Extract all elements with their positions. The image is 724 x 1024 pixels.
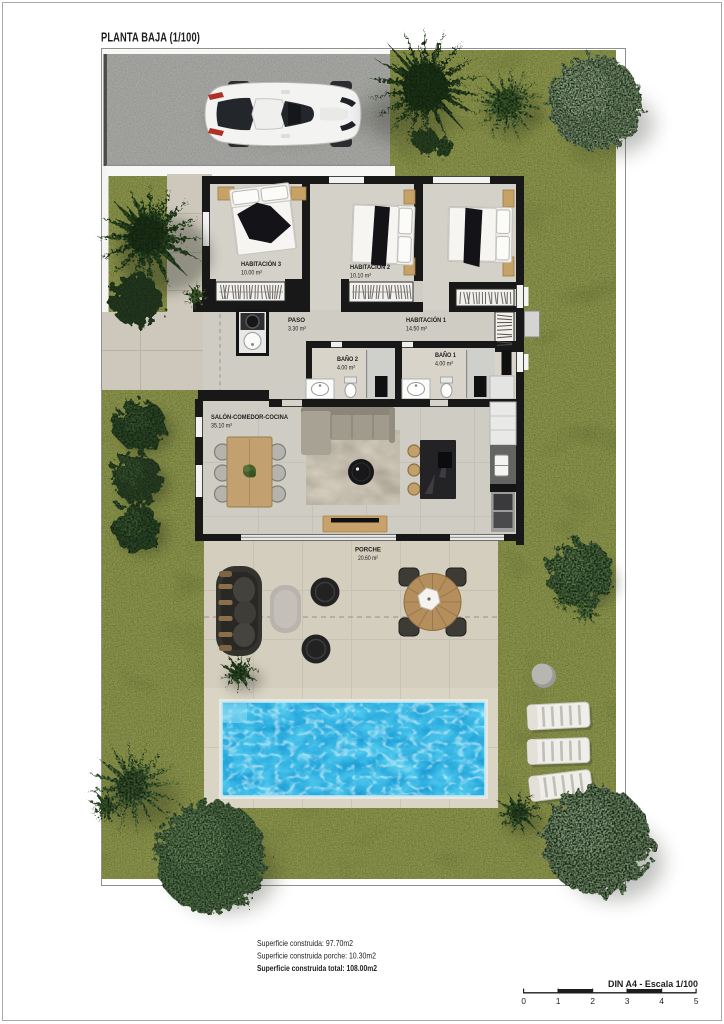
svg-text:4.00 m²: 4.00 m² (337, 366, 355, 372)
svg-text:4.00 m²: 4.00 m² (435, 362, 453, 368)
svg-text:BAÑO 2: BAÑO 2 (337, 354, 358, 363)
svg-text:1: 1 (556, 997, 561, 1006)
svg-text:SALÓN-COMEDOR-COCINA: SALÓN-COMEDOR-COCINA (211, 412, 288, 421)
svg-text:5: 5 (694, 997, 699, 1006)
svg-text:0: 0 (521, 997, 526, 1006)
svg-text:2: 2 (590, 997, 595, 1006)
svg-text:10.00 m²: 10.00 m² (241, 271, 262, 277)
svg-text:HABITACIÓN 3: HABITACIÓN 3 (241, 259, 281, 268)
svg-text:PASO: PASO (288, 317, 305, 324)
svg-text:HABITACIÓN 1: HABITACIÓN 1 (406, 315, 446, 324)
svg-text:10.10 m²: 10.10 m² (350, 274, 371, 280)
svg-text:PLANTA BAJA (1/100): PLANTA BAJA (1/100) (101, 30, 200, 45)
svg-text:DIN A4 - Escala 1/100: DIN A4 - Escala 1/100 (608, 979, 698, 990)
svg-text:HABITACIÓN 2: HABITACIÓN 2 (350, 262, 390, 271)
svg-text:3: 3 (625, 997, 630, 1006)
svg-text:PORCHE: PORCHE (355, 547, 381, 554)
svg-text:BAÑO 1: BAÑO 1 (435, 350, 456, 359)
svg-text:14.50 m²: 14.50 m² (406, 327, 427, 333)
svg-text:Superficie construida: 97.70m2: Superficie construida: 97.70m2 (257, 939, 353, 948)
svg-text:Superficie construida total: 1: Superficie construida total: 108.00m2 (257, 964, 377, 973)
svg-text:Superficie construida porche:: Superficie construida porche: 10.30m2 (257, 952, 376, 961)
svg-text:35.10 m²: 35.10 m² (211, 424, 232, 430)
svg-text:3.30 m²: 3.30 m² (288, 327, 306, 333)
svg-text:20.60 m²: 20.60 m² (358, 556, 378, 562)
svg-text:4: 4 (659, 997, 664, 1006)
